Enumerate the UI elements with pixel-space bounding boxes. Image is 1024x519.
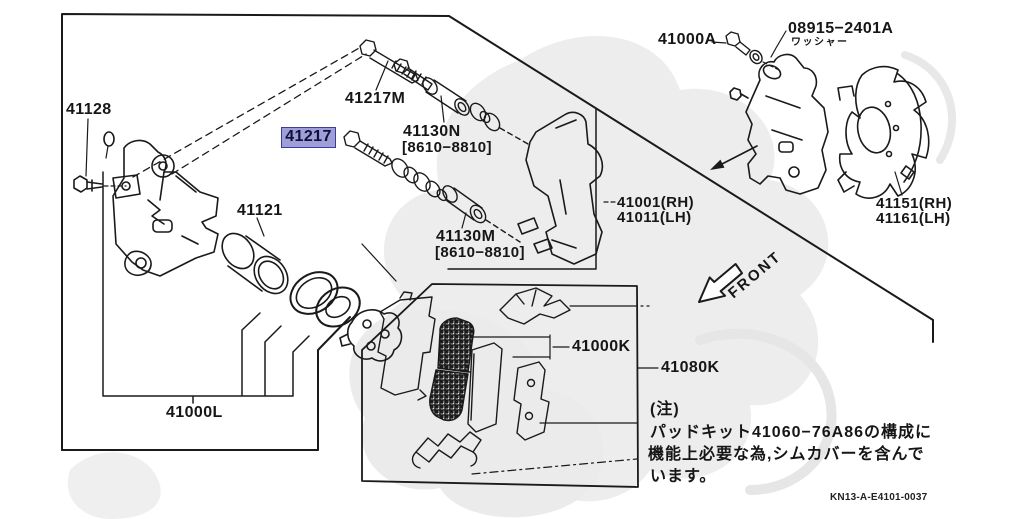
bleeder-bolt-drawing [74, 132, 126, 192]
part-label-41000k[interactable]: 41000K [572, 339, 630, 356]
splash-shield-drawing [838, 67, 929, 199]
caliper-body-drawing [113, 141, 218, 276]
part-label-41217-highlighted[interactable]: 41217 [281, 127, 336, 148]
part-label-41000a[interactable]: 41000A [658, 32, 716, 49]
part-label-washer-caption: ワッシャー [791, 38, 849, 49]
drawing-code: KN13-A-E4101-0037 [830, 492, 927, 503]
part-label-08915-2401a[interactable]: 08915−2401A [788, 21, 893, 38]
note-line-1: パッドキット41060−76A86の構成に [650, 418, 932, 442]
part-label-41128[interactable]: 41128 [66, 102, 112, 119]
note-line-3: います。 [650, 462, 716, 486]
note-heading: (注) [650, 395, 680, 419]
part-label-41130m-range: [8610−8810] [435, 245, 525, 261]
part-label-41080k[interactable]: 41080K [661, 360, 719, 377]
part-label-41161-lh[interactable]: 41161(LH) [876, 211, 950, 227]
parts-diagram-page: 41128 41217M 41217 41130N [8610−8810] 41… [0, 0, 1024, 519]
explosion-dashed-lines [133, 47, 396, 281]
part-label-41121[interactable]: 41121 [237, 203, 283, 220]
part-label-41217m[interactable]: 41217M [345, 91, 405, 108]
part-label-41130n-range: [8610−8810] [402, 140, 492, 156]
mount-bolt-drawing [726, 32, 765, 66]
part-label-41011-lh[interactable]: 41011(LH) [617, 210, 691, 226]
part-label-41000l[interactable]: 41000L [166, 405, 223, 422]
note-line-2: 機能上必要な為,シムカバーを含んで [648, 440, 925, 464]
